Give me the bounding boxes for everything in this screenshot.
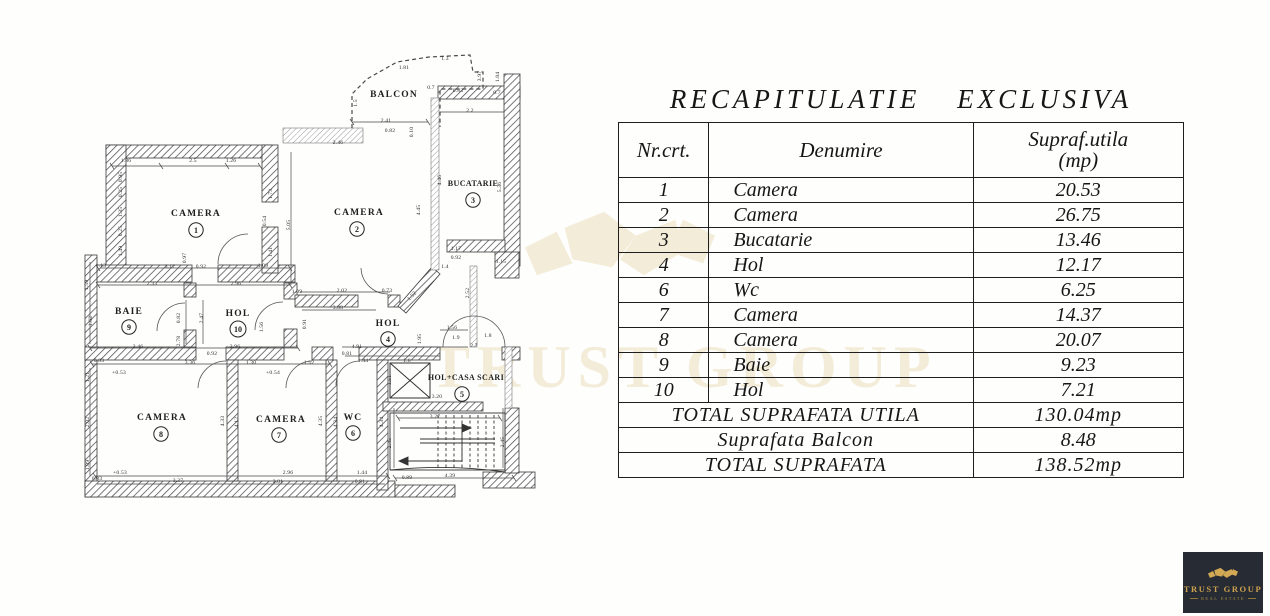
dimension-label: 0.7 [427,85,435,91]
room-label: BUCATARIE [448,179,498,188]
dimension-label: 1.3 [441,56,449,62]
dimension-label: 2.47 [199,313,205,324]
dimension-label: 1.09 [258,263,269,269]
table-row: 8Camera20.07 [619,328,1184,353]
dimension-label: 2.7 [470,343,478,349]
dimension-label: 3.46 [133,344,144,350]
dimension-label: 1.81 [399,65,410,71]
dimension-label: 0.91 [302,319,308,330]
dimension-label: 1.8 [484,333,492,339]
dimension-label: 0.81 [342,351,353,357]
dimension-label: +0.54 [266,370,280,376]
row-number: 7 [619,303,709,328]
dimension-label: 2.45 [500,437,506,448]
row-value: 13.46 [973,228,1183,253]
balcon-row: Suprafata Balcon 8.48 [619,428,1184,453]
dimension-label: 1.30 [246,360,257,366]
dimension-label: 0.89 [402,475,413,481]
dimension-label: 2.46 [333,140,344,146]
dimension-label: 1.13 [96,263,107,269]
room-number: 4 [386,335,390,344]
room-number: 8 [159,430,163,439]
table-row: 10Hol7.21 [619,378,1184,403]
row-name: Bucatarie [709,228,973,253]
table-row: 9Baie9.23 [619,353,1184,378]
dimension-label: 2.96 [231,281,242,287]
dimension-label: 3.17 [165,264,176,270]
row-name: Hol [709,253,973,278]
dimension-label: 2.96 [230,344,241,350]
dimension-label: +0.53 [112,370,126,376]
dimension-label: 1.56 [259,322,265,333]
room-number: 6 [351,429,355,438]
dimension-label: 2.02 [337,288,348,294]
dimension-label: 1.44 [358,358,369,364]
dimension-label: 0.92 [196,264,207,270]
room-label: HOL+CASA SCARI [428,373,504,382]
row-number: 8 [619,328,709,353]
table-row: 7Camera14.37 [619,303,1184,328]
dimension-label: 1.41 [268,247,274,258]
brand-subtitle: REAL ESTATE [1198,596,1248,601]
room-label: BALCON [370,90,418,100]
balcon-label: Suprafata Balcon [619,428,974,453]
room-label: WC [344,413,363,423]
col-header-nr: Nr.crt. [619,123,709,178]
room-number: 9 [127,323,131,332]
brand-subtitle-rule: REAL ESTATE [1190,596,1256,601]
dimension-label: 2.01 [273,479,284,485]
dimension-label: 1.51 [387,375,393,386]
dimension-label: 1.84 [495,72,501,83]
balcon-value: 8.48 [973,428,1183,453]
dimension-label: 3.97 [477,71,483,82]
row-number: 6 [619,278,709,303]
dimension-label: 0.82 [385,128,396,134]
dimension-label: 2.2 [466,108,474,114]
row-name: Camera [709,203,973,228]
scanned-document-page: TRUST GROUP [0,0,1270,616]
col-header-sup: Supraf.utila (mp) [973,123,1183,178]
room-label: BAIE [115,307,143,317]
room-label: CAMERA [334,208,384,218]
row-value: 20.53 [973,178,1183,203]
dimension-label: 1.21 [85,372,91,383]
dimension-label: 1.44 [357,470,368,476]
recap-table: Nr.crt. Denumire Supraf.utila (mp) 1Came… [618,122,1184,478]
elevator-shaft [390,363,430,398]
room-label: CAMERA [171,209,221,219]
row-value: 20.07 [973,328,1183,353]
total-utila-value: 130.04mp [973,403,1183,428]
table-row: 4Hol12.17 [619,253,1184,278]
room-number: 2 [355,225,359,234]
dimension-label: 1.09 [85,460,91,471]
row-value: 12.17 [973,253,1183,278]
dimension-label: 4.91 [352,344,363,350]
row-name: Camera [709,178,973,203]
table-row: 6Wc6.25 [619,278,1184,303]
dimension-label: 0.54 [262,216,268,227]
dimension-label: 1.6 [403,358,411,364]
row-value: 26.75 [973,203,1183,228]
brand-logo: TRUST GROUP REAL ESTATE [1183,552,1263,613]
row-number: 4 [619,253,709,278]
table-row: 2Camera26.75 [619,203,1184,228]
handshake-icon [1208,565,1238,582]
total-label: TOTAL SUPRAFATA [619,453,974,478]
row-name: Baie [709,353,973,378]
row-number: 3 [619,228,709,253]
dimension-label: 3.37 [173,478,184,484]
dimension-label: 0.92 [451,255,462,261]
dimension-label: 0.97 [182,253,188,264]
dimension-label: 0.95 [118,172,124,183]
dimension-label: 2.45 [387,438,393,449]
dimension-label: 0.91 [355,479,366,485]
dimension-label: +0.53 [113,470,127,476]
dimension-label: 1.5 [353,99,359,107]
dimension-label: 0.7 [493,90,501,96]
dimension-label: 3.20 [432,394,443,400]
room-number: 10 [234,325,242,334]
row-name: Wc [709,278,973,303]
row-value: 6.25 [973,278,1183,303]
dimension-label: 1.49 [118,246,124,257]
dimension-label: 4.39 [445,473,456,479]
dimension-label: 4.45 [416,205,422,216]
dimension-label: 1.26 [226,158,237,164]
dimension-label: 1.95 [417,334,423,345]
dimension-label: 0.83 [453,88,464,94]
table-row: 3Bucatarie13.46 [619,228,1184,253]
dimension-label: 1.15 [496,259,507,265]
dimension-label: 2.33 [147,281,158,287]
dimension-label: 3.27 [430,414,441,420]
row-number: 10 [619,378,709,403]
dimension-label: 1.56 [447,325,458,331]
dimension-label: 0.73 [382,288,393,294]
col-header-sup-unit: (mp) [976,150,1181,171]
row-value: 9.23 [973,353,1183,378]
dimension-label: 3.88 [333,305,344,311]
row-value: 7.21 [973,378,1183,403]
room-label: CAMERA [137,413,187,423]
room-number: 3 [471,196,475,205]
dimension-label: 2.5 [189,158,197,164]
dimension-label: 1.17 [451,246,462,252]
row-number: 1 [619,178,709,203]
dimension-label: 1.62 [88,316,94,327]
total-utila-row: TOTAL SUPRAFATA UTILA 130.04mp [619,403,1184,428]
dimension-label: 2.96 [283,470,294,476]
dimension-label: 3.36 [185,360,196,366]
staircase [390,413,505,472]
dimension-label: 4.34 [379,417,385,428]
dimension-label: 1.86 [121,158,132,164]
row-number: 9 [619,353,709,378]
recap-section: RECAPITULATIE EXCLUSIVA Nr.crt. Denumire… [618,84,1184,478]
table-row: 1Camera20.53 [619,178,1184,203]
dimension-label: 4.46 [437,175,443,186]
row-number: 2 [619,203,709,228]
room-number: 5 [460,390,464,399]
room-number: 1 [194,226,198,235]
dimension-label: 1.35 [118,207,124,218]
dimension-label: 1.9 [452,335,460,341]
room-label: HOL [376,319,401,329]
dimension-label: 5.36 [497,182,503,193]
floor-plan: CAMERA1CAMERA2BUCATARIE3BALCONBAIE9HOL10… [0,0,560,616]
room-label: HOL [226,309,251,319]
dimension-label: 0.10 [409,127,415,138]
dimension-label: 0.25 [118,187,124,198]
header-row: Nr.crt. Denumire Supraf.utila (mp) [619,123,1184,178]
total-value: 138.52mp [973,453,1183,478]
dimension-label: 2.52 [465,288,471,299]
room-label: CAMERA [256,415,306,425]
light-walls [283,98,512,408]
dimension-label: 1.09 [292,289,303,295]
dimension-label: 0.82 [176,313,182,324]
col-header-sup-title: Supraf.utila [976,129,1181,150]
total-row: TOTAL SUPRAFATA 138.52mp [619,453,1184,478]
dimension-label: 4.34 [333,417,339,428]
dimension-label: 1.52 [304,360,315,366]
dimension-label: 4.35 [318,416,324,427]
dimension-label: 2.78 [176,336,182,347]
room-number: 7 [277,431,281,440]
table-title: RECAPITULATIE EXCLUSIVA [618,84,1184,115]
row-name: Camera [709,328,973,353]
dimension-label: 0.92 [207,351,218,357]
dimension-label: 0.25 [118,226,124,237]
row-value: 14.37 [973,303,1183,328]
col-header-den: Denumire [709,123,973,178]
dimension-label: 5.05 [286,220,292,231]
dimension-label: 0.83 [92,476,103,482]
brand-name: TRUST GROUP [1184,584,1263,594]
dimension-label: 1.73 [268,189,274,200]
dimension-label: 0.83 [94,358,105,364]
dimension-label: 4.33 [220,416,226,427]
total-utila-label: TOTAL SUPRAFATA UTILA [619,403,974,428]
row-name: Hol [709,378,973,403]
dimension-label: 2.02 [85,417,91,428]
dimension-label: 1.4 [441,264,449,270]
dimension-label: 4.12 [234,417,240,428]
dimension-label: 1.59 [84,280,90,291]
row-name: Camera [709,303,973,328]
dimension-label: 2.41 [381,118,392,124]
